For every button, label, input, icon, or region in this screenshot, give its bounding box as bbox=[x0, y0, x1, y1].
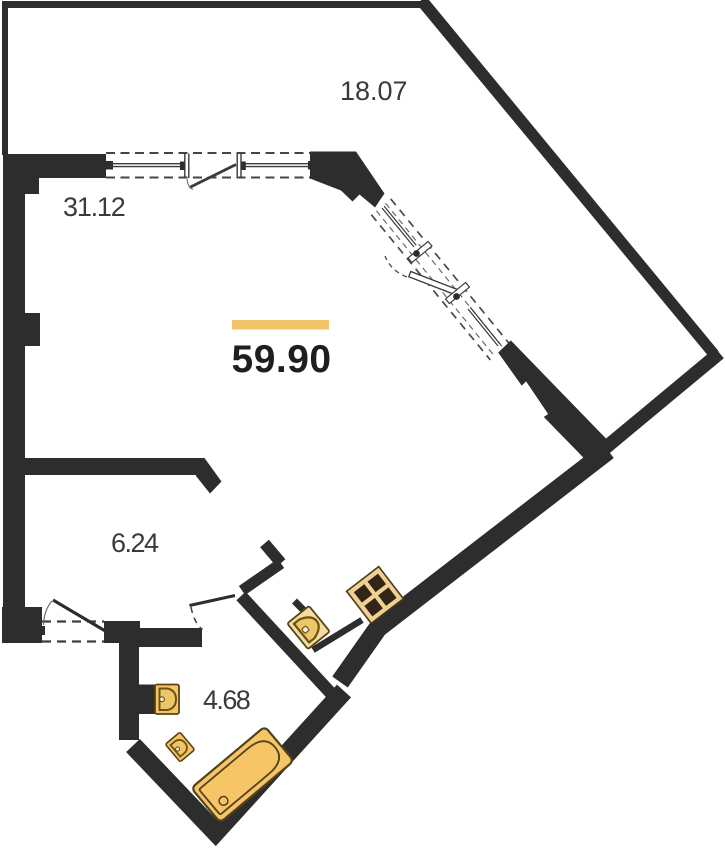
svg-text:31.12: 31.12 bbox=[63, 192, 125, 222]
svg-text:4.68: 4.68 bbox=[203, 685, 250, 715]
svg-text:18.07: 18.07 bbox=[340, 76, 408, 106]
svg-text:6.24: 6.24 bbox=[111, 528, 159, 558]
svg-text:59.90: 59.90 bbox=[232, 338, 332, 381]
